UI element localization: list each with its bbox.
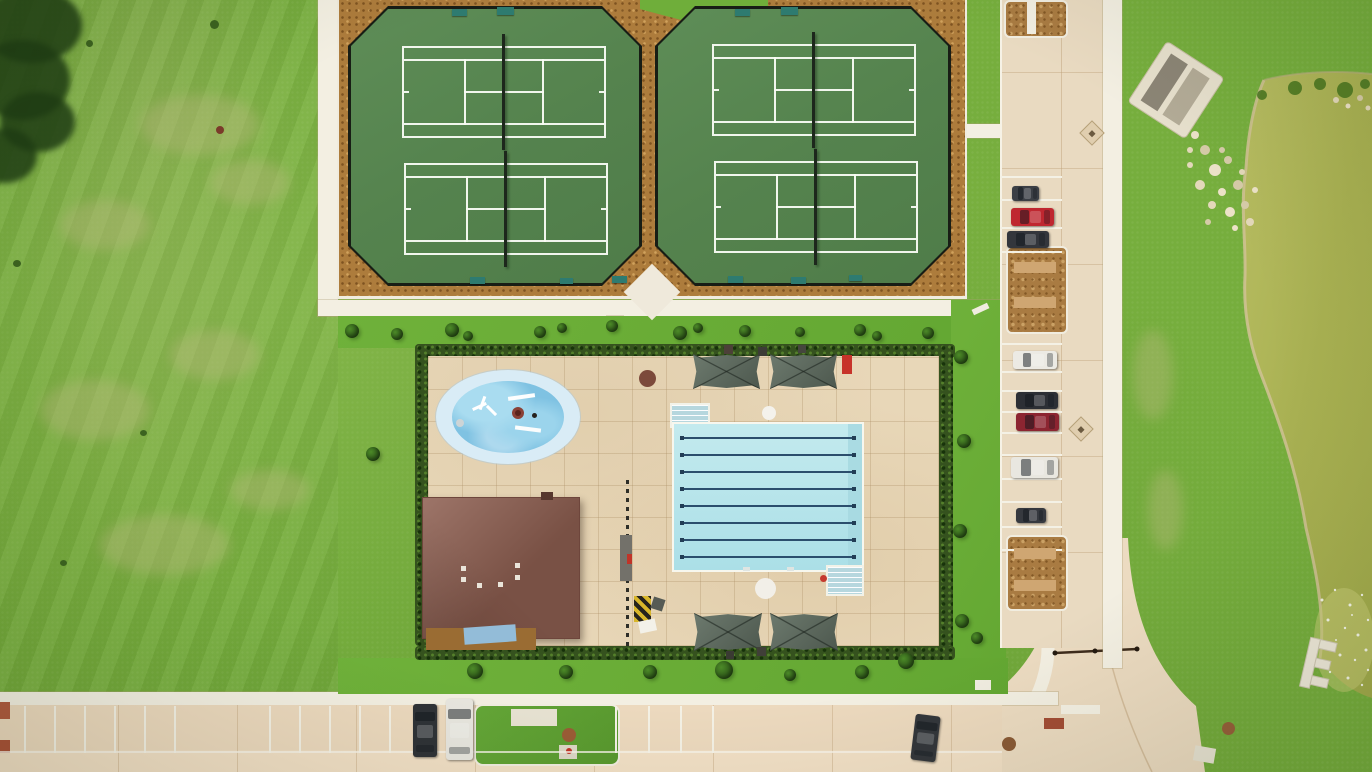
rock [1346,104,1351,109]
shore-shrub [1360,79,1370,89]
water-sparkle [1367,619,1369,621]
rock [1191,131,1199,139]
rock [1200,145,1210,155]
rock [1233,180,1243,190]
shore-shrub [1337,82,1353,98]
pool-gutter-edge [848,424,862,570]
pool-hedge-south [415,646,955,660]
shrub [366,447,380,461]
rock [1241,201,1249,209]
water-sparkle [1361,684,1363,686]
shore-shrub [1314,78,1326,90]
splash-pad-water [452,381,564,453]
pond-shoreline-top [1264,72,1372,80]
water-sparkle [1357,634,1360,637]
rock [1187,162,1193,168]
rock [1177,117,1183,123]
tennis-surface-east [658,9,948,283]
shore-shrubs [1257,78,1370,100]
pond-water [1243,72,1372,698]
street-median-island [474,704,620,766]
manhole [1002,737,1016,751]
rock [1252,187,1258,193]
lap-pool [674,424,862,570]
rock [1219,147,1225,153]
water-sparkle [1367,669,1369,671]
rock [1357,95,1363,101]
brick-paver [1044,718,1064,729]
lawn-strip-south [338,658,1008,694]
manhole [1222,722,1235,735]
gate-post [1135,647,1140,652]
rock [1239,169,1245,175]
water-sparkle [1361,594,1363,596]
rock [1218,188,1226,196]
gate-post [1093,649,1098,654]
tennis-surface-west [351,9,639,283]
pool-entry-steps [672,405,708,426]
sidewalk-main-horizontal [318,300,1008,316]
water-sparkle [1354,659,1356,661]
parking-curb [1000,0,1002,648]
crosswalk [1061,705,1100,714]
pond-shallow-patch [1314,588,1372,692]
shore-shrub [1288,81,1302,95]
water-sparkle [1344,627,1346,629]
water-sparkle [1327,619,1330,622]
rock [1246,218,1254,226]
gate-arm [1055,649,1137,653]
concrete-pad [1193,745,1216,763]
pool-fence [626,480,629,648]
tennis-fence-east [655,6,951,286]
water-sparkle [1329,671,1331,673]
sidewalk-west [318,0,338,316]
dry-grass-patch [1148,470,1183,550]
aerial-photo-community-amenity-center: Aerial drone view of a community amenity… [0,0,1372,772]
e-shaped-outfall [1300,637,1338,692]
dry-grass-patch [1133,330,1173,420]
water-sparkle [1347,677,1350,680]
rock [1208,201,1216,209]
rock [1224,156,1232,164]
sidewalk-parking-east [1103,0,1122,668]
drainage-outfall [1128,41,1224,138]
riprap-rocks [1169,95,1371,231]
rock [1209,164,1221,176]
pond-shoreline [1243,80,1321,658]
rock [1187,147,1193,153]
gate-post [1053,651,1058,656]
grass-field-left [0,0,338,772]
rock [1333,97,1339,103]
water-sparkles [1321,589,1370,686]
shore-shrub [1257,90,1267,100]
rock [1232,225,1238,231]
water-sparkle [1321,599,1324,602]
pool-hedge-east [939,344,953,660]
rock [1205,219,1211,225]
water-sparkle [1335,639,1337,641]
tennis-fence-west [348,6,642,286]
lawn-strip-east [951,300,1006,694]
rock [1225,207,1235,217]
rock [1169,109,1175,115]
rock [1366,106,1371,111]
water-sparkle [1324,647,1326,649]
water-sparkle [1339,654,1342,657]
pool-house-roof [422,497,580,639]
pool-corner-steps [828,567,862,594]
water-sparkle [1351,614,1353,616]
water-sparkle [1334,589,1336,591]
water-sparkle [1349,604,1352,607]
rock [1195,180,1205,190]
water-sparkle [1365,649,1368,652]
